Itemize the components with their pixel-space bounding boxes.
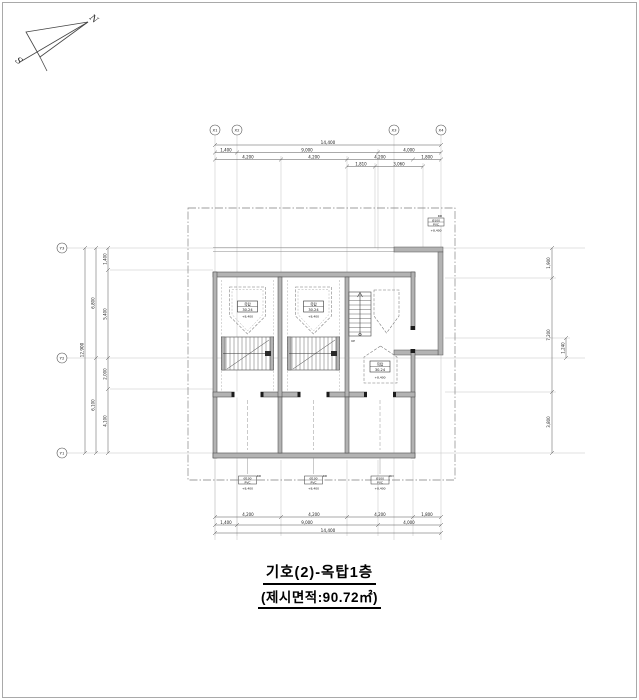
unit2-tag-name: 옥탑 bbox=[310, 301, 317, 306]
dim-bot-r2-1: 9,000 bbox=[301, 520, 313, 525]
opening-2 bbox=[301, 392, 327, 398]
opening-1 bbox=[235, 392, 261, 398]
dim-bot-r1-1: 4,200 bbox=[308, 512, 320, 517]
wall-left bbox=[213, 272, 217, 458]
dim-bot-r2-0: 1,400 bbox=[220, 520, 232, 525]
dim-left-s0: 1,400 bbox=[103, 253, 108, 265]
drain2-spec: PVC bbox=[311, 480, 317, 484]
wall-party-2 bbox=[345, 277, 349, 397]
drain-tag-2: RD Ø100 PVC +8,400 bbox=[305, 474, 328, 491]
bubble-y3: Y3 bbox=[60, 246, 65, 251]
unit1-tag-area: 30.24 bbox=[242, 308, 253, 312]
dim-bot-r2-2: 4,000 bbox=[403, 520, 415, 525]
dim-right-offset: 1,240 bbox=[561, 342, 566, 354]
roof-deck bbox=[394, 247, 443, 355]
dim-bottom-total: 14,400 bbox=[321, 528, 336, 533]
bottom-extension-lines bbox=[215, 460, 413, 536]
dim-top-r4-1: 3,060 bbox=[393, 162, 405, 167]
dim-right-s2: 3,800 bbox=[546, 416, 551, 428]
deck-bottom-wall bbox=[394, 350, 438, 355]
unit-1: 옥탑 30.24 +8,400 bbox=[222, 280, 274, 392]
dim-top-r3-1: 4,200 bbox=[308, 155, 320, 160]
terrace-centerlines bbox=[248, 400, 381, 450]
drain-tag-3: RD Ø100 PVC +8,400 bbox=[371, 474, 394, 491]
dim-left-total: 12,900 bbox=[80, 342, 85, 357]
deck-top-wall bbox=[394, 247, 443, 252]
deck-right-wall bbox=[438, 252, 443, 355]
right-door-jamb-bottom bbox=[411, 349, 416, 353]
compass-tick bbox=[40, 57, 47, 71]
dim-bot-r1-3: 1,800 bbox=[421, 512, 433, 517]
wall-terrace-bottom bbox=[213, 453, 415, 458]
drain1-level: +8,400 bbox=[242, 487, 253, 491]
drain3-spec: PVC bbox=[377, 480, 383, 484]
dim-left: 1,400 5,400 2,000 4,100 6,800 6,100 12,9… bbox=[80, 246, 111, 455]
drain1-spec: PVC bbox=[245, 480, 251, 484]
wall-top bbox=[213, 272, 415, 277]
dim-bot-r1-0: 4,200 bbox=[242, 512, 254, 517]
dim-left-h0: 6,800 bbox=[91, 297, 96, 309]
drain-tag-1: RD Ø100 PVC +8,400 bbox=[239, 474, 262, 491]
bubble-y2: Y2 bbox=[60, 356, 65, 361]
wall-terrace-2 bbox=[345, 397, 349, 453]
dim-left-s1: 5,400 bbox=[103, 308, 108, 320]
drain4-spec: PVC bbox=[433, 222, 439, 226]
drain4-level: +8,400 bbox=[430, 229, 441, 233]
unit2-tag-area: 30.24 bbox=[308, 308, 319, 312]
unit3-tag-name: 옥탑 bbox=[377, 361, 384, 366]
drain2-level: +8,400 bbox=[308, 487, 319, 491]
drain3-label: RD bbox=[389, 474, 394, 478]
drawing-sheet: N S bbox=[0, 0, 639, 700]
common-stair: UP bbox=[349, 292, 371, 343]
top-extension-lines bbox=[281, 149, 423, 292]
right-extension-lines bbox=[445, 278, 570, 392]
dim-top-total: 14,400 bbox=[321, 140, 336, 145]
bubble-y1: Y1 bbox=[60, 451, 65, 456]
dim-top-r3-0: 4,200 bbox=[242, 155, 254, 160]
right-door-opening bbox=[411, 330, 417, 349]
bubble-x2: X2 bbox=[234, 128, 240, 133]
dim-top-r3-3: 1,800 bbox=[421, 155, 433, 160]
unit3-level: +8,400 bbox=[374, 376, 385, 380]
drawing-title: 기호(2)-옥탑1층 bbox=[263, 561, 376, 585]
north-label: N bbox=[86, 12, 100, 26]
dim-top-r4-0: 1,810 bbox=[355, 162, 367, 167]
unit1-level: +8,400 bbox=[242, 315, 253, 319]
wall-party-1 bbox=[278, 277, 282, 397]
dim-top-r3-2: 4,200 bbox=[374, 155, 386, 160]
grid-bubbles: X1 X2 X3 X4 Y3 Y2 Y1 bbox=[57, 125, 446, 458]
opening-3 bbox=[367, 392, 393, 398]
wall-terrace-1 bbox=[278, 397, 282, 453]
north-arrow: N S bbox=[13, 12, 101, 71]
unit2-stair bbox=[288, 337, 340, 370]
bubble-circles bbox=[57, 125, 446, 458]
bubble-x4: X4 bbox=[438, 128, 444, 133]
bubble-x3: X3 bbox=[391, 128, 397, 133]
dim-top-r2-2: 4,000 bbox=[403, 148, 415, 153]
drain1-label: RD bbox=[257, 474, 262, 478]
dim-right-s1: 7,200 bbox=[546, 329, 551, 341]
dim-top-r2-0: 1,400 bbox=[220, 148, 232, 153]
drain4-label: RD bbox=[438, 214, 443, 218]
dim-bot-r1-2: 4,200 bbox=[374, 512, 386, 517]
left-extension-lines bbox=[110, 270, 213, 389]
terrace bbox=[248, 400, 381, 474]
right-door-jamb-top bbox=[411, 326, 416, 330]
dim-top: 14,400 1,400 9,000 4,000 4,200 4,200 4,2… bbox=[213, 140, 443, 169]
title-block: 기호(2)-옥탑1층 (제시면적:90.72㎡) bbox=[0, 561, 639, 609]
unit-2: 옥탑 30.24 +8,400 bbox=[288, 280, 340, 392]
bubble-x1: X1 bbox=[212, 128, 218, 133]
unit-3: UP 옥탑 30.24 +8,400 bbox=[349, 290, 399, 383]
compass-axis bbox=[20, 22, 88, 62]
drain2-label: RD bbox=[323, 474, 328, 478]
drain-leaders bbox=[248, 458, 381, 474]
dim-right: 1,900 7,200 3,800 1,240 bbox=[546, 246, 568, 455]
unit3-roof-upper bbox=[374, 290, 399, 333]
drawing-area: (제시면적:90.72㎡) bbox=[258, 586, 381, 609]
dim-bottom: 4,200 4,200 4,200 1,800 1,400 9,000 4,00… bbox=[213, 512, 443, 535]
wall-right bbox=[411, 272, 415, 458]
dim-left-s3: 4,100 bbox=[103, 415, 108, 427]
unit1-stair bbox=[222, 337, 274, 370]
south-label: S bbox=[13, 56, 24, 68]
dim-right-s0: 1,900 bbox=[546, 257, 551, 269]
dim-left-h1: 6,100 bbox=[91, 399, 96, 411]
unit1-tag-name: 옥탑 bbox=[244, 301, 251, 306]
stair-up-label: UP bbox=[351, 339, 355, 343]
unit3-tag-area: 30.24 bbox=[375, 368, 386, 372]
unit2-level: +8,400 bbox=[308, 315, 319, 319]
dim-left-s2: 2,000 bbox=[103, 368, 108, 380]
drain-tag-4: RD Ø100 PVC +8,400 bbox=[428, 214, 444, 233]
dim-top-r2-1: 9,000 bbox=[301, 148, 313, 153]
drain3-level: +8,400 bbox=[374, 487, 385, 491]
